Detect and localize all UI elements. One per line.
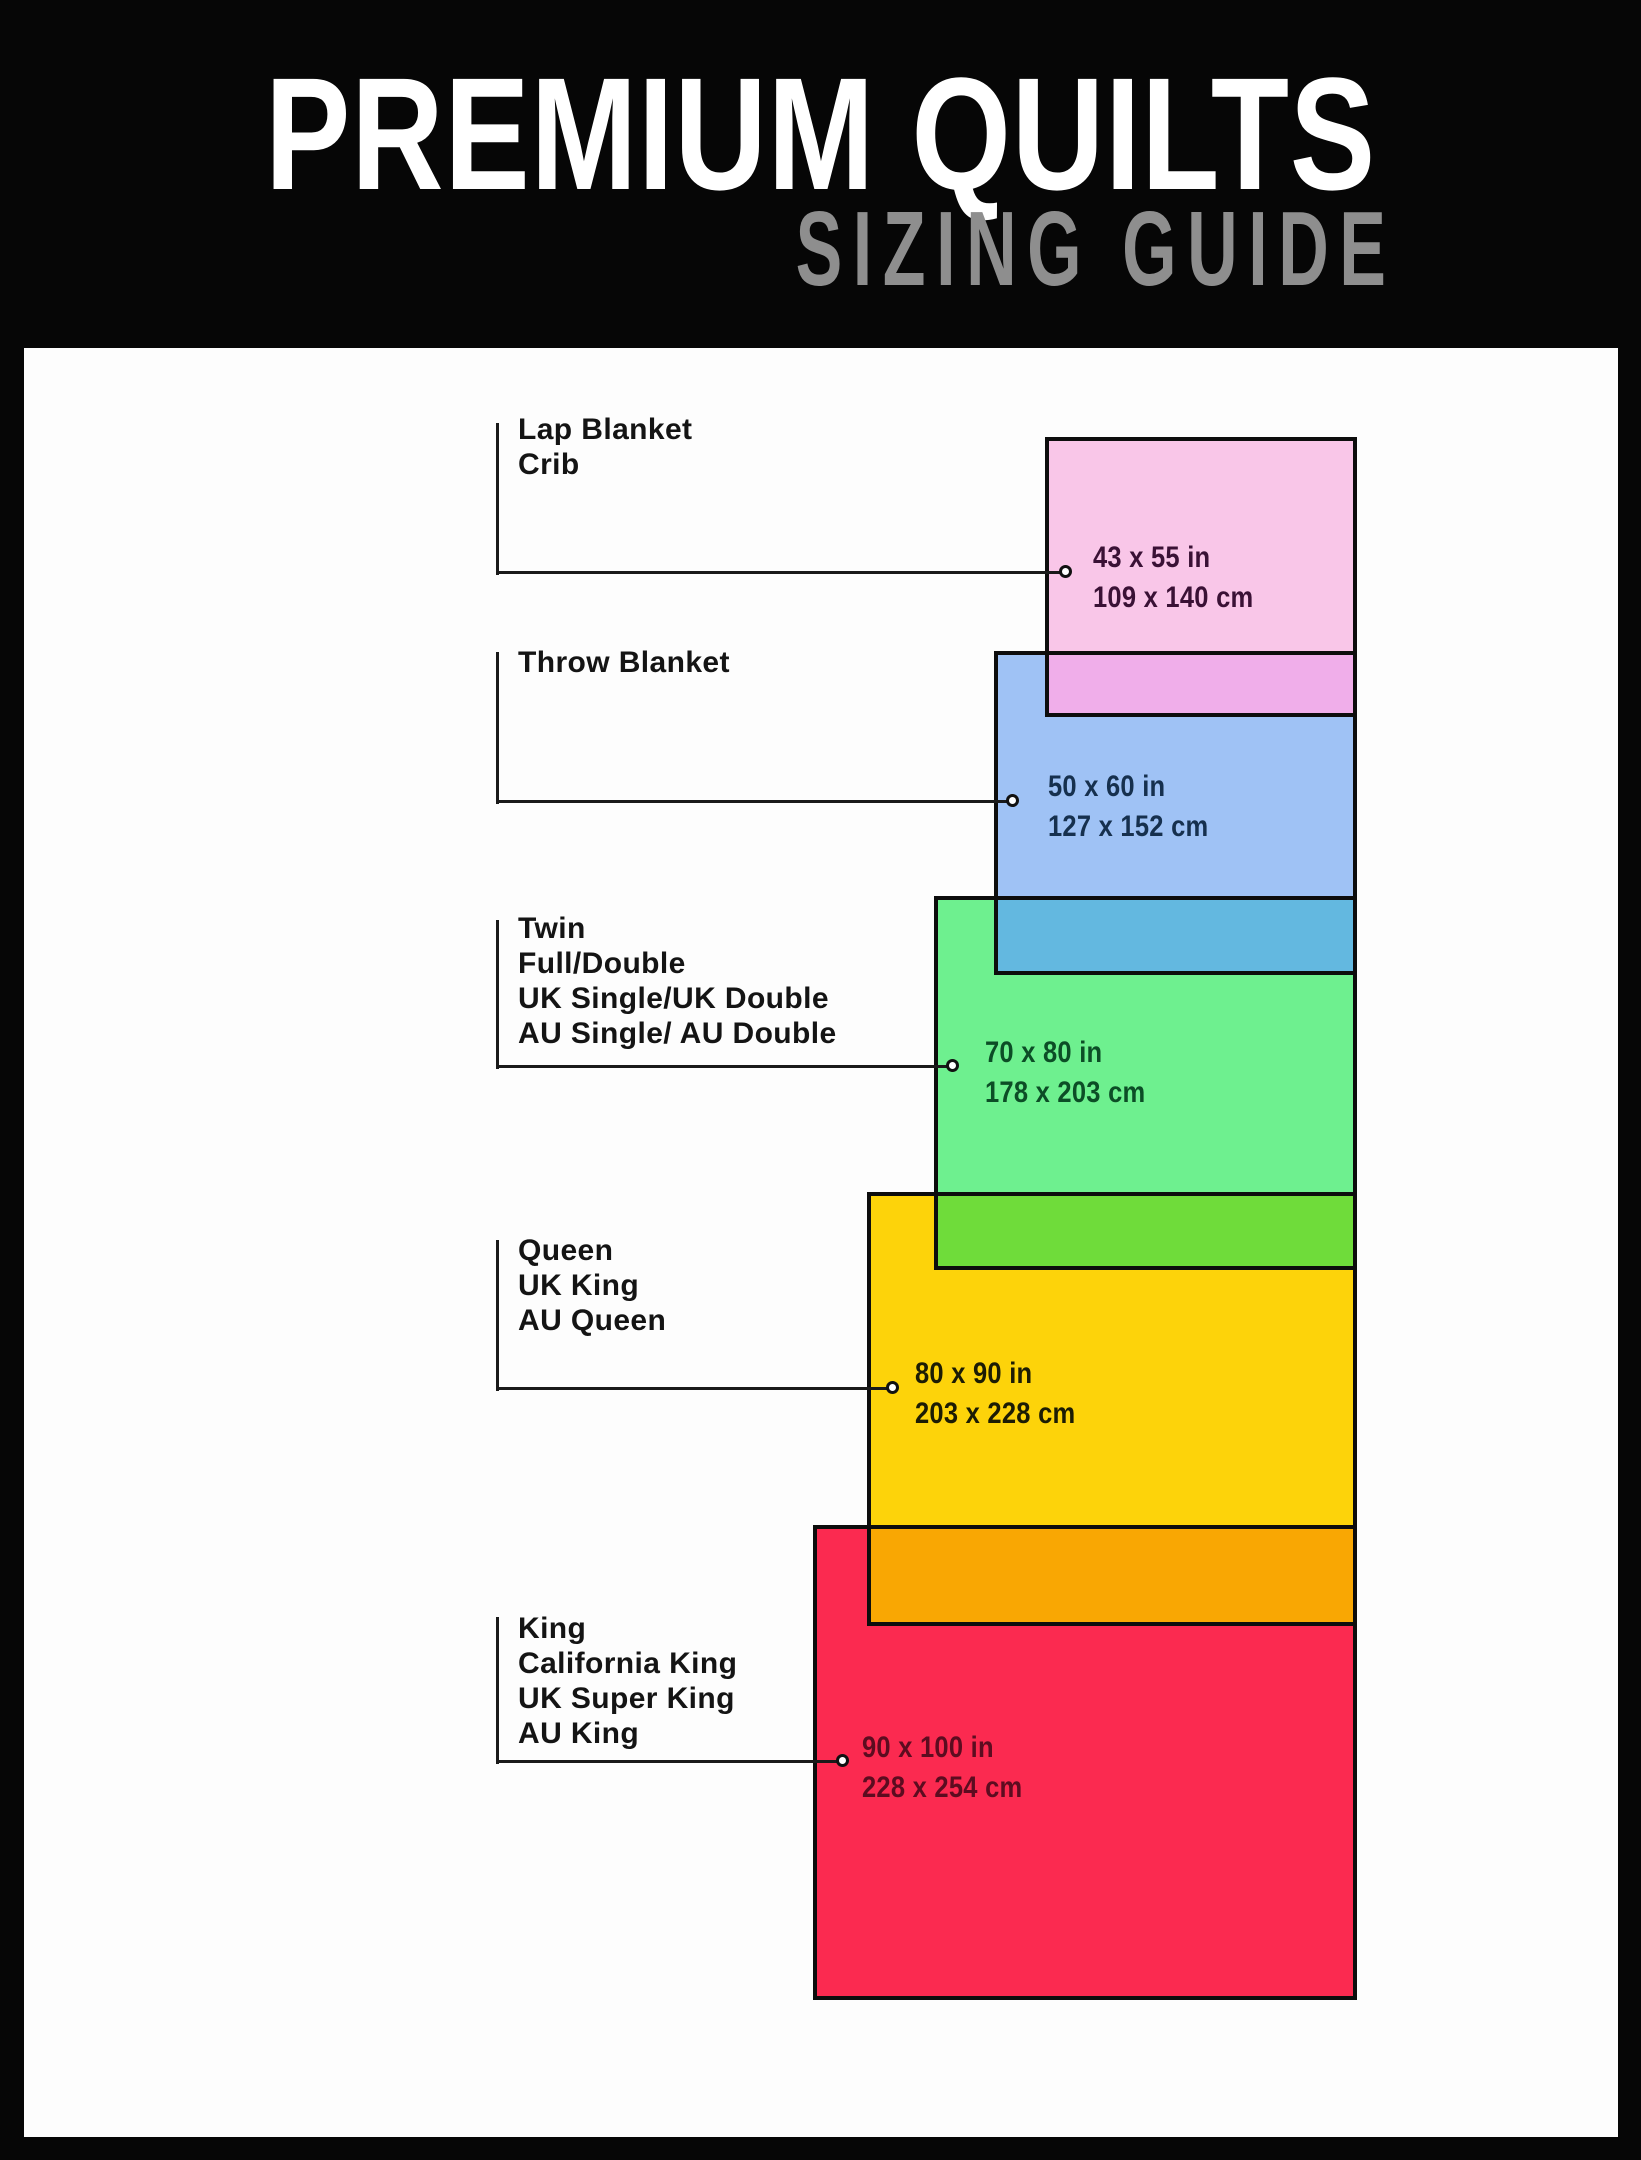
size-inches: 50 x 60 in — [1048, 767, 1208, 807]
label-line: California King — [518, 1646, 737, 1681]
size-text-king: 90 x 100 in 228 x 254 cm — [862, 1728, 1022, 1808]
leader-dot-throw — [1006, 794, 1019, 807]
size-inches: 43 x 55 in — [1093, 538, 1253, 578]
infographic-canvas: PREMIUM QUILTS SIZING GUIDE 43 x 55 in 1… — [0, 0, 1641, 2160]
leader-hline-lap-crib — [496, 571, 1066, 574]
overlap-lap-over-throw — [1049, 651, 1353, 713]
size-text-lap-crib: 43 x 55 in 109 x 140 cm — [1093, 538, 1253, 618]
label-line: UK Super King — [518, 1681, 737, 1716]
leader-vline-lap-crib — [496, 423, 499, 575]
label-line: Throw Blanket — [518, 645, 730, 680]
size-cm: 228 x 254 cm — [862, 1768, 1022, 1808]
label-line: AU King — [518, 1716, 737, 1751]
size-inches: 70 x 80 in — [985, 1033, 1145, 1073]
leader-vline-twin — [496, 920, 499, 1069]
size-text-queen: 80 x 90 in 203 x 228 cm — [915, 1354, 1075, 1434]
label-line: Lap Blanket — [518, 412, 692, 447]
page-subtitle: SIZING GUIDE — [796, 196, 1397, 302]
size-text-throw: 50 x 60 in 127 x 152 cm — [1048, 767, 1208, 847]
overlap-throw-over-twin — [998, 896, 1353, 971]
leader-vline-queen — [496, 1240, 499, 1391]
size-inches: 80 x 90 in — [915, 1354, 1075, 1394]
label-line: King — [518, 1611, 737, 1646]
label-line: UK Single/UK Double — [518, 981, 837, 1016]
label-line: Twin — [518, 911, 837, 946]
leader-dot-king — [836, 1754, 849, 1767]
label-lap-crib: Lap Blanket Crib — [518, 412, 692, 482]
leader-hline-twin — [496, 1065, 953, 1068]
size-cm: 127 x 152 cm — [1048, 807, 1208, 847]
overlap-twin-over-queen — [938, 1192, 1353, 1266]
label-line: AU Single/ AU Double — [518, 1016, 837, 1051]
label-queen: Queen UK King AU Queen — [518, 1233, 666, 1338]
overlap-queen-over-king — [871, 1525, 1353, 1622]
leader-vline-throw — [496, 652, 499, 804]
label-king: King California King UK Super King AU Ki… — [518, 1611, 737, 1751]
leader-hline-king — [496, 1760, 843, 1763]
content-board: 43 x 55 in 109 x 140 cm 50 x 60 in 127 x… — [24, 348, 1618, 2137]
size-inches: 90 x 100 in — [862, 1728, 1022, 1768]
leader-dot-lap-crib — [1059, 565, 1072, 578]
label-throw: Throw Blanket — [518, 645, 730, 680]
leader-dot-twin — [946, 1059, 959, 1072]
size-cm: 109 x 140 cm — [1093, 578, 1253, 618]
size-text-twin: 70 x 80 in 178 x 203 cm — [985, 1033, 1145, 1113]
label-line: AU Queen — [518, 1303, 666, 1338]
label-twin: Twin Full/Double UK Single/UK Double AU … — [518, 911, 837, 1051]
leader-hline-queen — [496, 1387, 893, 1390]
label-line: Full/Double — [518, 946, 837, 981]
size-cm: 203 x 228 cm — [915, 1394, 1075, 1434]
size-cm: 178 x 203 cm — [985, 1073, 1145, 1113]
leader-dot-queen — [886, 1381, 899, 1394]
label-line: UK King — [518, 1268, 666, 1303]
label-line: Queen — [518, 1233, 666, 1268]
leader-vline-king — [496, 1617, 499, 1764]
label-line: Crib — [518, 447, 692, 482]
leader-hline-throw — [496, 800, 1013, 803]
